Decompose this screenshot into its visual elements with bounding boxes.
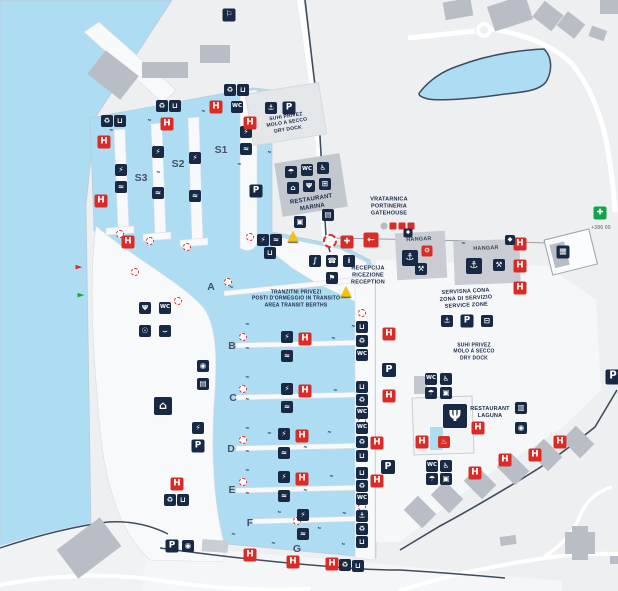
map-text-line: VRATARNICA <box>370 197 408 204</box>
gate-dot <box>381 223 388 230</box>
harbour-office-icon: ⚑ <box>326 272 338 284</box>
cctv-icon: ◉ <box>515 422 527 434</box>
hydrant-icon: H <box>171 478 184 491</box>
mooring-mark: ″ <box>240 397 252 409</box>
hydrant-icon: H <box>326 558 339 571</box>
electricity-icon: ⚡ <box>152 146 164 158</box>
accessible-icon: ♿ <box>440 373 452 385</box>
hydrant-icon: H <box>383 390 396 403</box>
shop-cart-icon: ⊞ <box>319 178 331 190</box>
hydrant-icon: H <box>210 101 223 114</box>
trash-icon: ⊔ <box>169 100 181 112</box>
mooring-mark: ″ <box>298 488 310 500</box>
life-ring-icon <box>323 234 337 248</box>
electricity-icon: ⚡ <box>115 164 127 176</box>
electricity-icon: ⚡ <box>189 152 201 164</box>
hydrant-icon: H <box>244 117 257 130</box>
hydrant-icon: H <box>383 328 396 341</box>
parking-icon: P <box>250 185 263 198</box>
wc-icon: WC <box>159 302 171 314</box>
hydrant-icon: H <box>371 437 384 450</box>
vending-icon: ▤ <box>322 209 334 221</box>
water-supply-icon: ≈ <box>278 447 290 459</box>
mooring-mark: ″ <box>224 285 236 297</box>
water-supply-icon: ≈ <box>115 181 127 193</box>
mooring-mark: ″ <box>266 541 278 553</box>
travel-lift-icon: ⚙ <box>422 246 433 257</box>
map-text-line: RECEPTION <box>351 279 385 286</box>
berth-label-s1: S1 <box>215 144 228 156</box>
map-text-restaurant-laguna: RESTAURANTLAGUNA <box>470 406 509 420</box>
hydrant-icon: H <box>416 436 429 449</box>
mooring-mark: ″ <box>240 449 252 461</box>
mooring-mark: ″ <box>336 542 348 554</box>
repair-icon: ⚒ <box>415 263 427 275</box>
mooring-mark: ″ <box>456 241 468 253</box>
hydrant-icon: H <box>287 556 300 569</box>
water-supply-icon: ≈ <box>189 190 201 202</box>
electricity-icon: ⚡ <box>281 383 293 395</box>
port-light-red-icon: ► <box>75 264 84 273</box>
berth-label-a: A <box>207 281 215 293</box>
berth-label-c: C <box>229 392 237 404</box>
life-ring-marker <box>239 333 247 341</box>
wc-icon: WC <box>426 460 438 472</box>
parking-icon: P <box>381 460 395 474</box>
water-supply-icon: ≈ <box>152 187 164 199</box>
boat-lift-icon: ⚓ <box>265 102 277 114</box>
wc-icon: WC <box>425 373 437 385</box>
wc-icon: WC <box>356 349 368 361</box>
map-text-service-zone: SERVISNA CONAZONA DI SERVIZIOSERVICE ZON… <box>439 287 493 310</box>
recycle-icon: ♻ <box>356 480 368 492</box>
map-text-transit-berths: TRANZITNI PRIVEZIPOSTI D'ORMEGGIO IN TRA… <box>252 290 340 309</box>
hydrant-icon: H <box>371 475 384 488</box>
repair-icon: ⚒ <box>493 259 505 271</box>
kiosk-icon: ▦ <box>557 246 570 259</box>
map-text-line: DRY DOCK <box>453 355 494 361</box>
hotel-icon: ⌂ <box>154 397 172 415</box>
hydrant-icon: H <box>514 238 527 251</box>
electricity-icon: ⚡ <box>281 331 293 343</box>
hydrant-icon: H <box>469 467 482 480</box>
life-ring-marker <box>131 268 139 276</box>
hydrant-icon: H <box>472 422 485 435</box>
cctv-icon: ◉ <box>197 360 209 372</box>
berth-label-s3: S3 <box>135 172 148 184</box>
hydrant-icon: H <box>499 454 512 467</box>
electricity-icon: ⚡ <box>192 422 204 434</box>
mooring-mark: ″ <box>324 474 336 486</box>
water-supply-icon: ≈ <box>297 528 309 540</box>
hydrant-icon: H <box>244 549 257 562</box>
map-text-hangar-2: HANGAR <box>473 245 499 253</box>
mooring-mark: ″ <box>328 388 340 400</box>
mooring-mark: ″ <box>240 346 252 358</box>
parking-icon: P <box>166 540 179 553</box>
berth-label-g: G <box>293 543 301 555</box>
mooring-mark: ″ <box>151 170 163 182</box>
windsock-icon: ⚐ <box>223 9 236 22</box>
mooring-mark: ″ <box>322 430 334 442</box>
map-text-reception: RECEPCIJARICEZIONERECEPTION <box>351 266 385 287</box>
life-ring-marker <box>239 478 247 486</box>
fuel-station-icon: ∫ <box>309 255 321 267</box>
recycle-icon: ♻ <box>356 523 368 535</box>
laundry-icon: ▣ <box>440 387 452 399</box>
trash-icon: ⊔ <box>114 115 126 127</box>
sign-icon: ◆ <box>404 229 413 238</box>
berth-label-d: D <box>227 443 235 455</box>
restaurant-icon: Ψ <box>303 180 315 192</box>
mooring-mark: ″ <box>262 150 274 162</box>
vending-icon: ▤ <box>197 378 209 390</box>
map-text-phone-number: +386 05 <box>591 225 611 231</box>
hydrant-icon: H <box>299 333 312 346</box>
map-overlay: S1S2S3ABCDEFGSUHI PRIVEZMOLO A SECCODRY … <box>0 0 618 591</box>
recycle-icon: ♻ <box>164 494 176 506</box>
info-icon: i <box>343 255 355 267</box>
hydrant-icon: H <box>95 195 108 208</box>
berth-label-e: E <box>228 484 235 496</box>
recycle-icon: ♻ <box>224 84 236 96</box>
wc-icon: WC <box>356 407 368 419</box>
trash-icon: ⊔ <box>264 247 276 259</box>
life-ring-marker <box>174 297 182 305</box>
trash-icon: ⊔ <box>177 494 189 506</box>
life-ring-marker <box>358 309 366 317</box>
water-supply-icon: ≈ <box>278 490 290 502</box>
hydrant-icon: H <box>299 385 312 398</box>
water-supply-icon: ≈ <box>270 234 282 246</box>
hydrant-icon: H <box>529 449 542 462</box>
map-text-line: RECEPCIJA <box>351 266 385 273</box>
recycle-icon: ♻ <box>156 100 168 112</box>
trash-icon: ⊔ <box>356 381 368 393</box>
water-supply-icon: ≈ <box>281 350 293 362</box>
electricity-icon: ⚡ <box>297 509 309 521</box>
hydrant-icon: H <box>514 260 527 273</box>
hydrant-icon: H <box>296 430 309 443</box>
sign-icon: ◆ <box>505 235 515 245</box>
map-text-line: PORTINERIA <box>370 204 408 211</box>
wc-icon: WC <box>356 422 368 434</box>
cctv-icon: ◉ <box>182 540 194 552</box>
hydrant-icon: H <box>554 436 567 449</box>
map-text-line: AREA TRANSIT BERTHS <box>252 302 340 308</box>
map-text-line: POSTI D'ORMEGGIO IN TRANSITO <box>252 296 340 302</box>
hydrant-icon: H <box>98 136 111 149</box>
entrance-arrow-icon: ← <box>364 233 379 248</box>
mooring-mark: ″ <box>298 445 310 457</box>
recycle-icon: ♻ <box>339 559 351 571</box>
restaurant-icon: Ψ <box>139 302 151 314</box>
mooring-mark: ″ <box>142 118 154 130</box>
life-ring-marker <box>246 233 254 241</box>
electricity-icon: ⚡ <box>278 471 290 483</box>
shower-icon: ☂ <box>426 473 438 485</box>
trash-icon: ⊔ <box>352 560 364 572</box>
trash-icon: ⊔ <box>356 467 368 479</box>
life-ring-marker <box>239 436 247 444</box>
electricity-icon: ⚡ <box>278 428 290 440</box>
trash-icon: ⊔ <box>356 536 368 548</box>
trash-icon: ⊔ <box>356 321 368 333</box>
mooring-mark: ″ <box>226 532 238 544</box>
accessible-icon: ♿ <box>317 162 329 174</box>
port-light-green-icon: ► <box>77 292 86 301</box>
recycle-icon: ♻ <box>356 335 368 347</box>
warning-icon: ▲ <box>286 229 300 243</box>
map-text-line: HANGAR <box>473 245 499 253</box>
hydrant-icon: H <box>514 282 527 295</box>
phone-icon: ☎ <box>326 255 338 267</box>
marina-map: S1S2S3ABCDEFGSUHI PRIVEZMOLO A SECCODRY … <box>0 0 618 591</box>
accessible-icon: ♿ <box>440 460 452 472</box>
locker-icon: ▥ <box>515 402 527 414</box>
first-aid-icon: ✚ <box>341 236 354 249</box>
berth-label-s2: S2 <box>172 158 185 170</box>
boat-trailer-icon: ⊟ <box>481 315 493 327</box>
recycle-icon: ♻ <box>101 115 113 127</box>
restaurant-icon: Ψ <box>443 404 467 428</box>
mooring-mark: ″ <box>326 336 338 348</box>
gate-light <box>390 223 397 230</box>
shower-icon: ☂ <box>425 387 437 399</box>
berth-label-f: F <box>247 517 253 529</box>
beach-icon: ⌣ <box>159 325 171 337</box>
map-text-line: LAGUNA <box>470 413 509 420</box>
mooring-mark: ″ <box>312 526 324 538</box>
mooring-mark: ″ <box>240 491 252 503</box>
electricity-icon: ⚡ <box>257 234 269 246</box>
hydrant-icon: H <box>296 473 309 486</box>
hydrant-icon: H <box>161 118 174 131</box>
parking-icon: P <box>606 370 618 385</box>
parking-icon: P <box>461 315 474 328</box>
mooring-mark: ″ <box>262 431 274 443</box>
map-text-line: RICEZIONE <box>351 273 385 280</box>
recycle-icon: ♻ <box>356 394 368 406</box>
boat-lift-icon: ⚓ <box>441 315 453 327</box>
map-text-line: RESTAURANT <box>470 406 509 413</box>
map-text-line: +386 05 <box>591 225 611 231</box>
berth-label-b: B <box>228 340 236 352</box>
mooring-mark: ″ <box>196 109 208 121</box>
laundry-icon: ▣ <box>440 473 452 485</box>
pharmacy-cross-icon: ✚ <box>594 207 607 220</box>
warning-icon: ▲ <box>339 284 353 298</box>
life-ring-marker <box>183 243 191 251</box>
trash-icon: ⊔ <box>237 84 249 96</box>
boat-lift-icon: ⚓ <box>356 510 368 522</box>
map-text-gatehouse: VRATARNICAPORTINERIAGATEHOUSE <box>370 197 408 218</box>
water-supply-icon: ≈ <box>240 143 252 155</box>
wc-icon: WC <box>301 164 313 176</box>
mooring-mark: ″ <box>232 162 244 174</box>
hotel-icon: ⌂ <box>287 182 299 194</box>
recycle-icon: ♻ <box>356 436 368 448</box>
sports-icon: ☉ <box>139 325 151 337</box>
map-text-drydock-right: SUHI PRIVEZMOLO A SECCODRY DOCK <box>453 343 494 362</box>
trash-icon: ⊔ <box>356 450 368 462</box>
shower-icon: ☂ <box>285 166 297 178</box>
boat-lift-icon: ⚓ <box>466 258 482 274</box>
laundry-icon: ▣ <box>294 216 306 228</box>
life-ring-marker <box>239 385 247 393</box>
map-text-line: MOLO A SECCO <box>453 349 494 355</box>
wellness-icon: ♨ <box>438 436 450 448</box>
map-text-line: GATEHOUSE <box>370 210 408 217</box>
hydrant-icon: H <box>122 236 135 249</box>
parking-icon: P <box>283 102 296 115</box>
wc-icon: WC <box>356 493 368 505</box>
life-ring-marker <box>146 237 154 245</box>
water-supply-icon: ≈ <box>281 401 293 413</box>
mooring-mark: ″ <box>337 511 349 523</box>
parking-icon: P <box>192 440 205 453</box>
wc-icon: WC <box>231 101 243 113</box>
parking-icon: P <box>382 363 396 377</box>
mooring-mark: ″ <box>272 510 284 522</box>
